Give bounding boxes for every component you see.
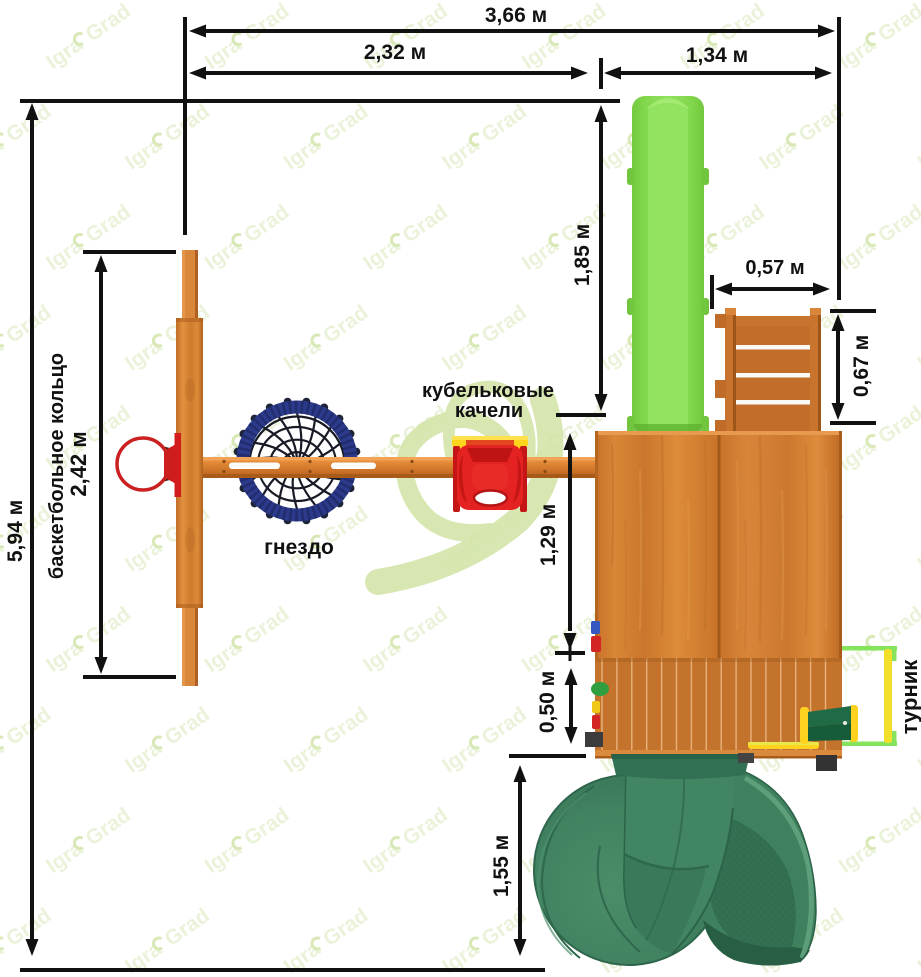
svg-text:гнездо: гнездо [264, 536, 334, 559]
svg-text:0,67 м: 0,67 м [850, 335, 873, 397]
svg-text:3,66 м: 3,66 м [485, 4, 547, 27]
svg-text:0,50 м: 0,50 м [536, 671, 559, 733]
svg-text:0,57 м: 0,57 м [745, 257, 804, 279]
svg-text:2,42 м: 2,42 м [66, 431, 91, 496]
svg-text:качели: качели [455, 400, 523, 422]
svg-text:1,34 м: 1,34 м [686, 44, 748, 67]
svg-text:турник: турник [897, 659, 921, 735]
svg-text:5,94 м: 5,94 м [4, 500, 27, 562]
svg-text:2,32 м: 2,32 м [364, 41, 426, 64]
svg-text:1,29 м: 1,29 м [537, 504, 560, 566]
svg-text:кубельковые: кубельковые [422, 380, 554, 402]
svg-text:баскетбольное кольцо: баскетбольное кольцо [46, 353, 68, 579]
svg-text:1,55 м: 1,55 м [490, 835, 513, 897]
svg-text:1,85 м: 1,85 м [571, 224, 594, 286]
